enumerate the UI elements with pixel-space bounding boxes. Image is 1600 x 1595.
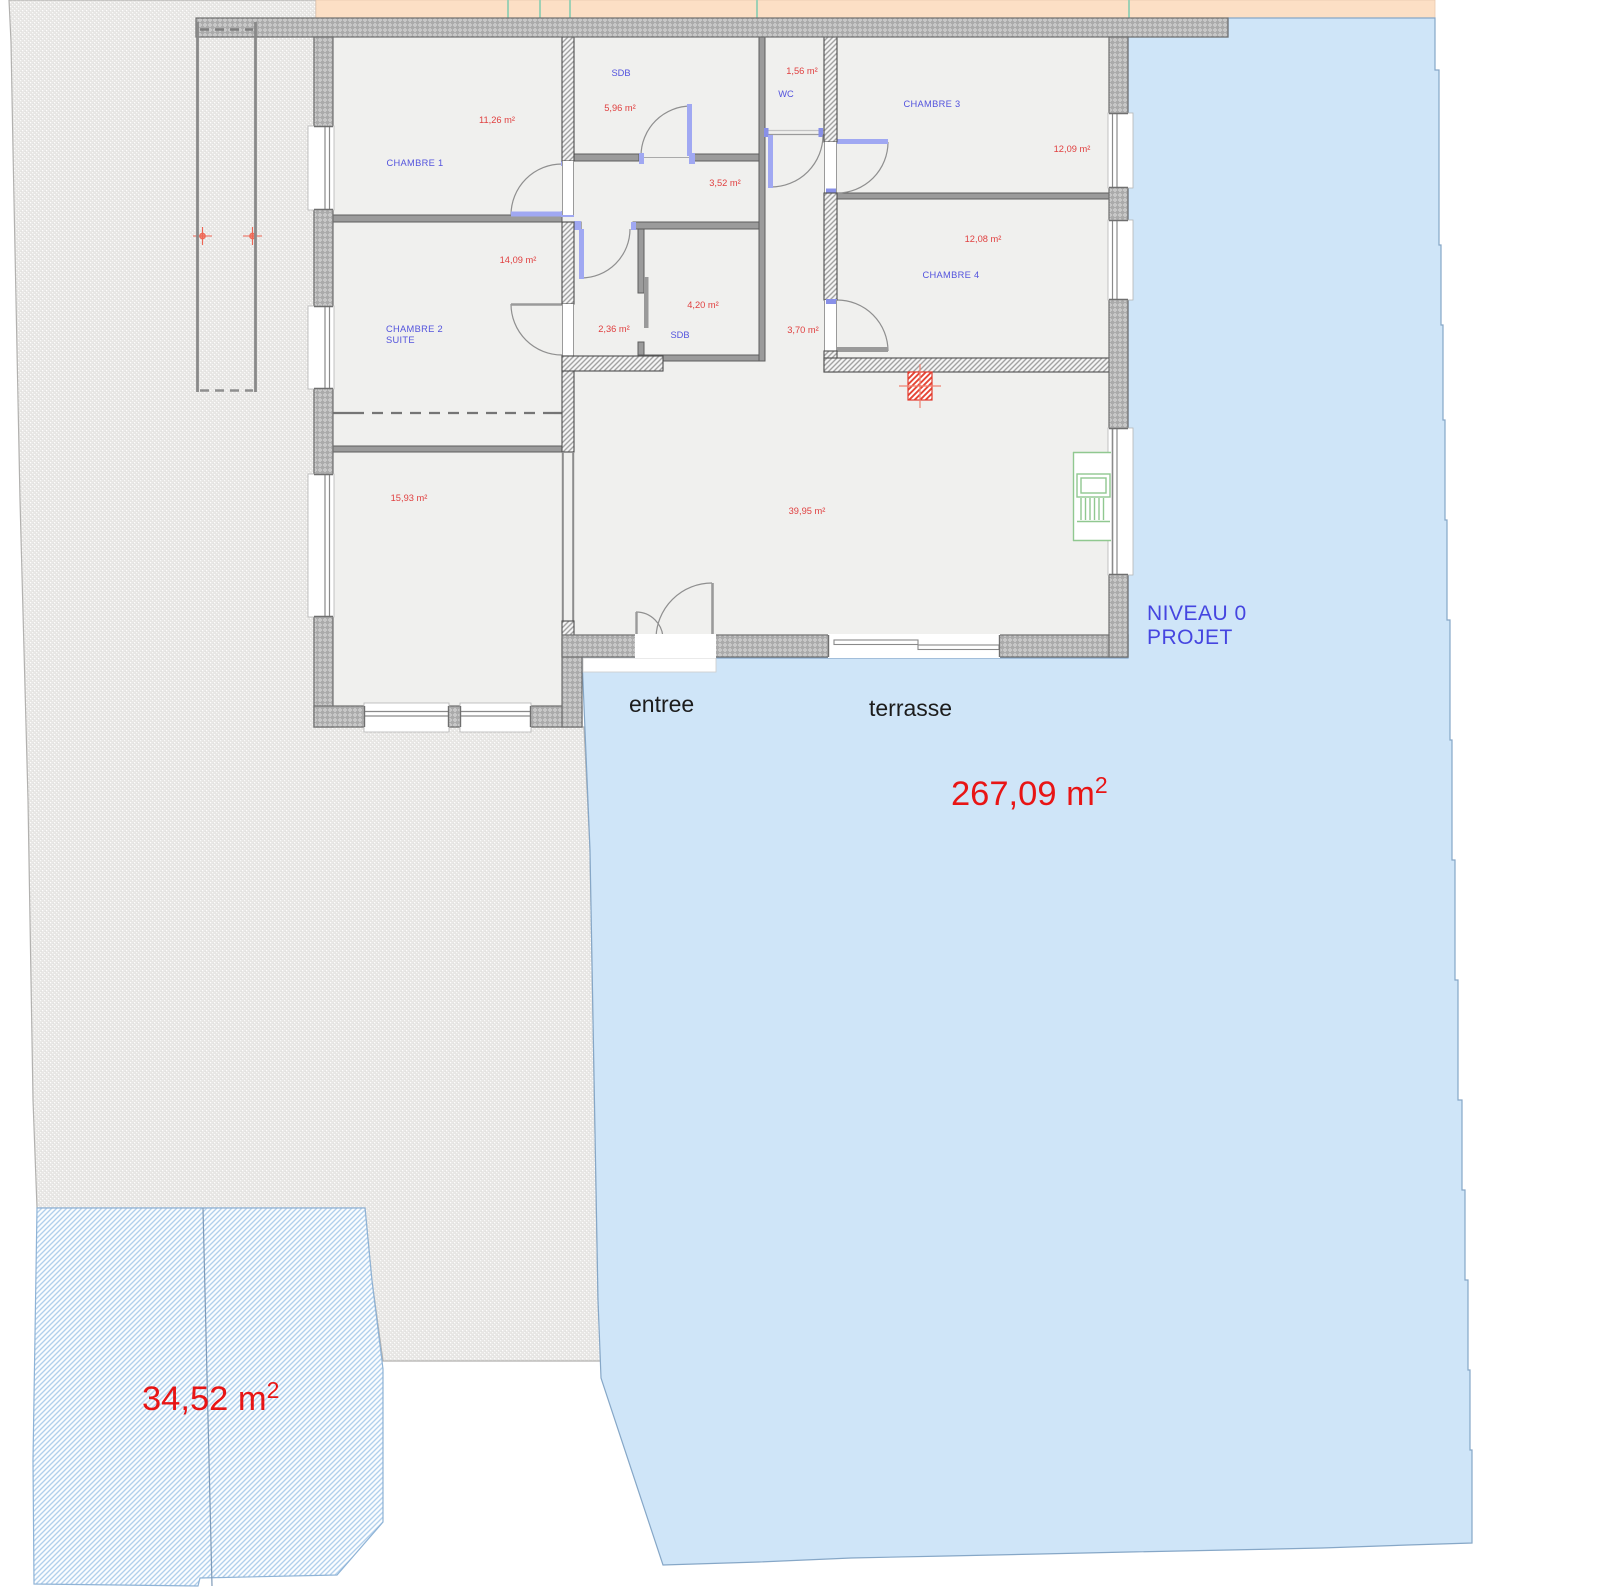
- svg-text:4,20 m²: 4,20 m²: [687, 300, 719, 310]
- svg-text:NIVEAU 0: NIVEAU 0: [1147, 602, 1247, 625]
- svg-text:SUITE: SUITE: [386, 335, 415, 345]
- svg-text:1,56 m²: 1,56 m²: [786, 66, 818, 76]
- svg-text:3,70 m²: 3,70 m²: [787, 325, 819, 335]
- svg-text:CHAMBRE 1: CHAMBRE 1: [387, 158, 444, 168]
- svg-text:12,08 m²: 12,08 m²: [965, 234, 1002, 244]
- svg-text:15,93 m²: 15,93 m²: [391, 493, 428, 503]
- svg-text:CHAMBRE 3: CHAMBRE 3: [904, 99, 961, 109]
- svg-text:5,96 m²: 5,96 m²: [604, 103, 636, 113]
- svg-text:WC: WC: [778, 89, 794, 99]
- svg-text:39,95 m²: 39,95 m²: [789, 506, 826, 516]
- svg-text:11,26 m²: 11,26 m²: [479, 115, 515, 125]
- svg-text:PROJET: PROJET: [1147, 626, 1233, 649]
- svg-text:entree: entree: [629, 691, 694, 717]
- svg-text:SDB: SDB: [670, 330, 689, 340]
- svg-text:267,09 m2: 267,09 m2: [951, 772, 1108, 813]
- svg-text:34,52 m2: 34,52 m2: [142, 1377, 279, 1418]
- svg-text:14,09 m²: 14,09 m²: [500, 255, 537, 265]
- svg-text:CHAMBRE 4: CHAMBRE 4: [923, 270, 980, 280]
- svg-text:terrasse: terrasse: [869, 695, 952, 721]
- svg-text:12,09 m²: 12,09 m²: [1054, 144, 1091, 154]
- svg-text:2,36 m²: 2,36 m²: [598, 324, 630, 334]
- svg-text:CHAMBRE 2: CHAMBRE 2: [386, 324, 443, 334]
- svg-text:SDB: SDB: [611, 68, 630, 78]
- svg-text:3,52 m²: 3,52 m²: [709, 178, 741, 188]
